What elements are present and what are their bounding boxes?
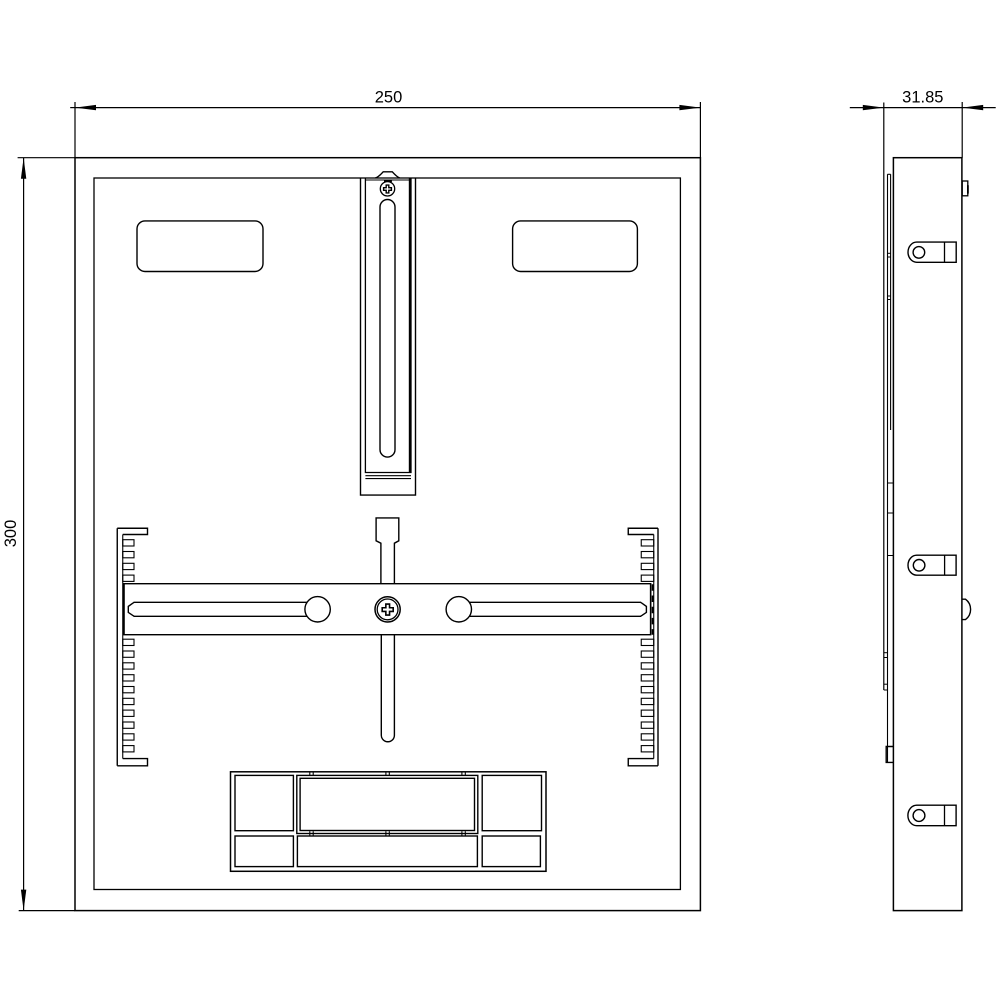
- svg-text:31.85: 31.85: [902, 89, 943, 107]
- svg-text:300: 300: [2, 520, 20, 548]
- svg-text:250: 250: [375, 89, 403, 107]
